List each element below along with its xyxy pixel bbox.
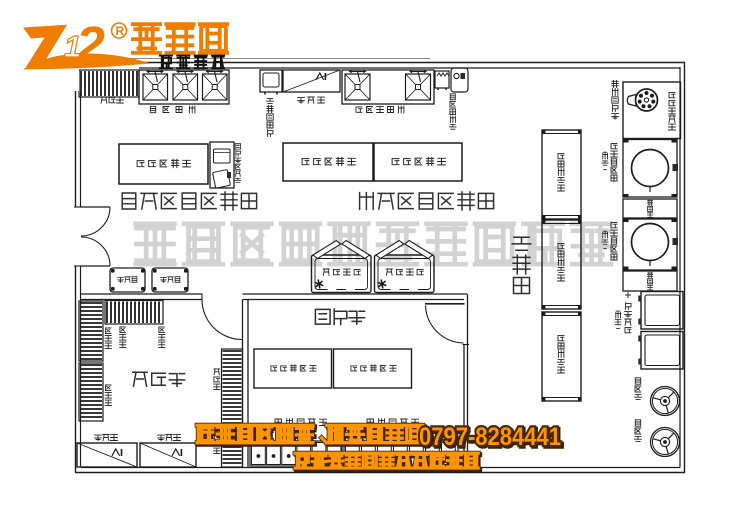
svg-text:0797-8284441: 0797-8284441 xyxy=(419,423,561,451)
svg-text:R: R xyxy=(116,24,125,38)
svg-text:1: 1 xyxy=(64,29,81,64)
